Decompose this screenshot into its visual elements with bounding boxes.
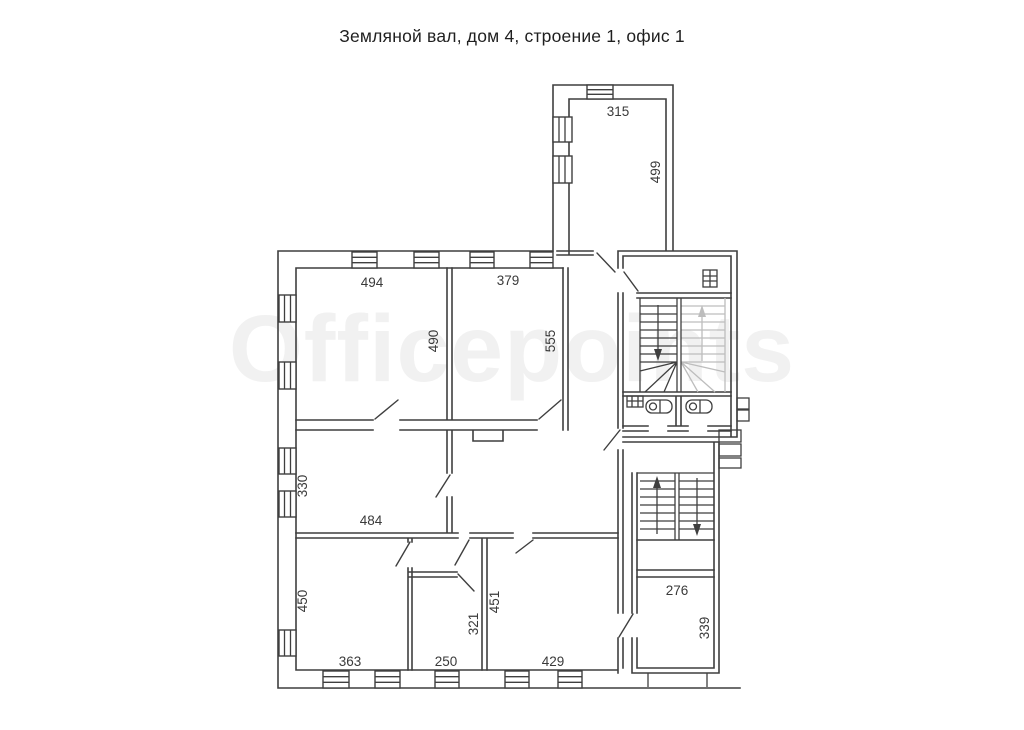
electrical-panel-icon [703,270,717,287]
floor-plan-page: Officepoints Земляной вал, дом 4, строен… [0,0,1024,730]
interior-walls [296,268,731,670]
window-symbol [553,156,572,183]
window-symbol [558,671,582,688]
dim-label-room-br-width: 276 [666,583,689,598]
entrance-porch [648,673,707,687]
dim-label-room-se-width: 429 [542,654,565,669]
dim-label-room-nw-width: 494 [361,275,384,290]
stair-down-arrow [693,524,701,536]
window-symbol [553,117,572,142]
dim-label-annex-width: 315 [607,104,630,119]
floor-plan-drawing: 315 499 494 490 379 555 330 484 450 363 … [0,0,1024,730]
dim-label-annex-height: 499 [648,161,663,184]
exterior-steps [719,398,749,468]
dim-label-room-n-height: 555 [543,330,558,353]
dim-label-room-sw-height: 450 [295,590,310,613]
stair-up-arrow [653,476,661,488]
dim-label-room-s-height: 321 [466,613,481,636]
window-symbol [587,85,613,99]
window-symbol [375,671,400,688]
dim-label-room-s-width: 250 [435,654,458,669]
window-symbol [352,252,377,268]
window-symbol [505,671,529,688]
window-symbol [530,252,553,268]
toilet-icon [646,400,672,413]
window-symbol [323,671,349,688]
toilet-icon [686,400,712,413]
window-symbol [279,295,296,322]
window-symbol [279,491,296,517]
window-symbol [435,671,459,688]
dim-label-room-w-height: 330 [295,475,310,498]
dim-label-room-n-width: 379 [497,273,520,288]
dim-label-room-se-height: 451 [487,591,502,614]
window-symbol [279,362,296,389]
window-symbol [279,630,296,656]
staircase-upper [640,298,725,392]
window-symbol [470,252,494,268]
stair-down-arrow [654,349,662,361]
window-symbol [414,252,439,268]
dim-label-room-w-width: 484 [360,513,383,528]
dim-label-room-nw-height: 490 [426,330,441,353]
staircase-lower [637,473,714,540]
window-symbol [279,448,296,474]
door-leaves [375,253,638,637]
dimension-labels: 315 499 494 490 379 555 330 484 450 363 … [295,104,712,669]
dim-label-room-br-height: 339 [697,617,712,640]
dim-label-room-sw-width: 363 [339,654,362,669]
stair-up-arrow [698,305,706,317]
sink-icon [627,396,643,407]
